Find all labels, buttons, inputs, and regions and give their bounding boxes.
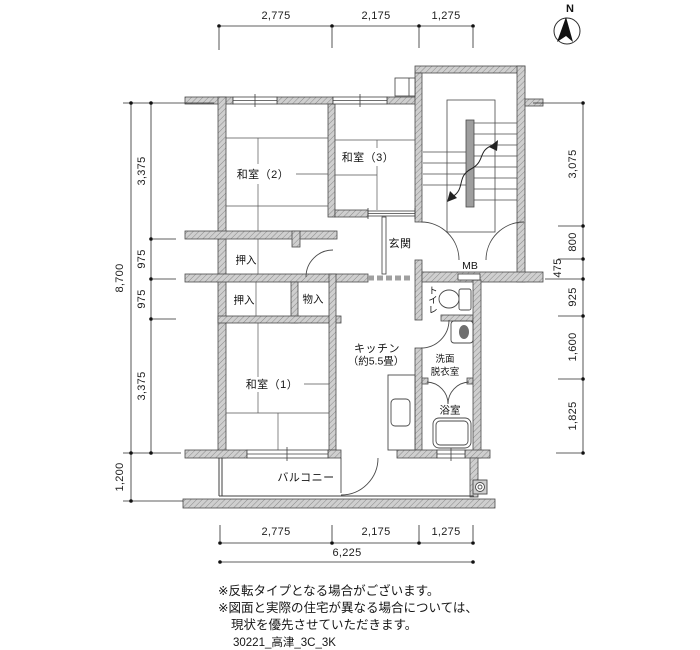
dim-right-3: 475 xyxy=(552,258,564,277)
entrance-door-arc xyxy=(421,222,459,260)
wall xyxy=(467,378,473,384)
room-label-washitsu3: 和室（3） xyxy=(342,149,395,165)
dimension-dots xyxy=(129,24,585,564)
wall xyxy=(328,450,341,458)
dim-bottom-1: 2,775 xyxy=(261,526,290,538)
dimension-lines xyxy=(123,24,585,564)
walls xyxy=(183,66,543,508)
sliding-door xyxy=(368,208,415,219)
pipe-space-box xyxy=(395,78,415,96)
bath-folding-door xyxy=(448,382,469,404)
stair-rail xyxy=(466,120,474,207)
room-label-bath: 浴室 xyxy=(440,403,461,418)
balcony-drain xyxy=(473,480,487,494)
room-label-oshiire-upper: 押入 xyxy=(236,253,257,268)
stair-arrowhead xyxy=(447,191,457,202)
stair-steps-right xyxy=(474,123,517,200)
wall xyxy=(185,231,337,239)
wall xyxy=(328,104,335,217)
toilet-fixture xyxy=(439,289,471,310)
room-label-monoire: 物入 xyxy=(303,292,324,307)
room-label-washitsu1: 和室（1） xyxy=(246,376,299,392)
washbasin-fixture xyxy=(451,321,473,343)
wall xyxy=(277,97,333,104)
wall xyxy=(517,66,525,282)
dim-left-1: 3,375 xyxy=(136,156,148,185)
bathtub-fixture xyxy=(433,418,471,448)
wall xyxy=(335,210,368,217)
north-compass-icon xyxy=(554,17,580,44)
dim-right-2: 800 xyxy=(567,232,579,251)
dim-right-5: 1,600 xyxy=(567,332,579,361)
wall xyxy=(415,260,422,320)
dim-right-1: 3,075 xyxy=(567,149,579,178)
dim-bottom-total: 6,225 xyxy=(332,547,361,559)
wall xyxy=(218,316,341,323)
wall xyxy=(292,231,300,247)
wall xyxy=(183,499,495,508)
washroom-door-arc xyxy=(421,320,449,348)
dim-left-2: 975 xyxy=(136,249,148,268)
wall xyxy=(185,450,247,458)
dim-top-2: 2,175 xyxy=(361,10,390,22)
plan-id: 30221_高津_3C_3K xyxy=(233,634,336,650)
wall xyxy=(329,274,336,450)
dim-top-3: 1,275 xyxy=(431,10,460,22)
room-label-toilet: トイレ xyxy=(424,286,438,315)
dim-left-balcony: 1,200 xyxy=(114,462,126,491)
bath-window xyxy=(437,447,465,461)
meter-box-door xyxy=(458,274,480,280)
room-label-washitsu2: 和室（2） xyxy=(237,166,290,182)
north-label: N xyxy=(566,3,574,15)
kitchen-sink xyxy=(391,399,410,426)
wall xyxy=(387,97,417,104)
kitchen-counter xyxy=(388,375,415,450)
wall xyxy=(415,66,525,73)
wall xyxy=(185,274,368,282)
dim-right-6: 1,825 xyxy=(567,401,579,430)
dim-bottom-2: 2,175 xyxy=(361,526,390,538)
dim-left-3: 975 xyxy=(136,289,148,308)
wall xyxy=(415,348,422,450)
note-line-3: 現状を優先させていただきます。 xyxy=(231,614,417,633)
stair-steps-left xyxy=(423,152,466,185)
genkan-partition xyxy=(382,217,386,274)
room-label-kitchen-size: （約5.5畳） xyxy=(348,354,405,369)
dim-bottom-3: 1,275 xyxy=(431,526,460,538)
dim-left-4: 3,375 xyxy=(136,371,148,400)
floor-plan-page: N 和室（2） 和室（3） 和室（1） 玄関 押入 押入 物入 キッチン （約5… xyxy=(0,0,700,650)
wall xyxy=(441,315,473,321)
room-label-balcony: バルコニー xyxy=(277,469,334,485)
balcony-door-arc xyxy=(341,458,378,495)
dim-left-total: 8,700 xyxy=(114,263,126,292)
room-label-meter-box: MB xyxy=(462,260,478,272)
wall xyxy=(465,450,490,458)
wall xyxy=(525,99,543,106)
stair-arrowhead xyxy=(489,140,498,151)
room-label-washroom-2: 脱衣室 xyxy=(431,364,460,378)
room-label-washroom-1: 洗面 xyxy=(435,351,454,365)
balcony-outline xyxy=(219,458,474,496)
bath-folding-door xyxy=(427,382,448,404)
room-label-genkan: 玄関 xyxy=(389,235,412,251)
room-label-oshiire-lower: 押入 xyxy=(234,293,255,308)
window xyxy=(233,94,277,107)
wall xyxy=(397,450,437,458)
dim-right-4: 925 xyxy=(567,287,579,306)
wall xyxy=(473,280,481,458)
dim-top-1: 2,775 xyxy=(261,10,290,22)
staircase xyxy=(423,100,517,232)
wall xyxy=(415,73,422,222)
wall xyxy=(422,272,543,282)
window xyxy=(247,447,328,461)
window xyxy=(333,94,387,107)
wall xyxy=(422,378,428,384)
hall-door-arc xyxy=(306,250,333,277)
